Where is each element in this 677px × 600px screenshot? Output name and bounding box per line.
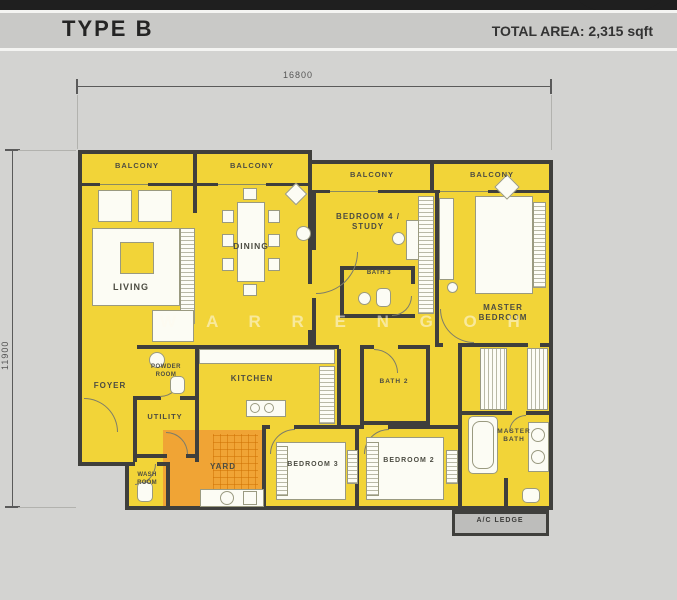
- wall: [458, 343, 528, 347]
- bed-pillows: [533, 202, 546, 288]
- sink: [531, 450, 545, 464]
- dining-chair: [268, 258, 280, 271]
- armchair: [98, 190, 132, 222]
- dining-chair: [222, 210, 234, 223]
- coffee-table: [120, 242, 154, 274]
- wall: [388, 425, 462, 429]
- room-label-bath2: BATH 2: [380, 378, 409, 386]
- wall: [540, 343, 553, 347]
- stove-burner: [264, 403, 274, 413]
- watermark-text: W A R R E N G O H: [160, 312, 540, 332]
- wall: [78, 150, 82, 466]
- toilet: [376, 288, 391, 307]
- wardrobe: [418, 196, 434, 314]
- room-label-bath3: BATH 3: [367, 270, 391, 278]
- dim-label-left: 11900: [0, 300, 10, 370]
- toilet: [522, 488, 540, 503]
- wall: [430, 160, 434, 193]
- floorplan-page: { "header": { "title": "TYPE B", "total_…: [0, 0, 677, 600]
- dim-label-top: 16800: [283, 70, 313, 80]
- dining-chair: [243, 284, 257, 296]
- room-label-master-bath: MASTER BATH: [497, 428, 530, 444]
- wall: [82, 183, 100, 186]
- wall: [137, 396, 161, 400]
- dining-chair: [243, 188, 257, 200]
- total-area-text: TOTAL AREA: 2,315 sqft: [492, 23, 653, 39]
- room-label-balcony-4: BALCONY: [470, 170, 514, 179]
- divider-line: [0, 48, 677, 51]
- stool: [447, 282, 458, 293]
- dim-line-top: [77, 86, 551, 87]
- room-label-bedroom3: BEDROOM 3: [287, 461, 338, 470]
- notch-top-right: [311, 150, 553, 160]
- room-label-wash-room: WASH ROOM: [137, 472, 157, 487]
- wall: [78, 462, 129, 466]
- bed-pillows: [276, 446, 288, 496]
- room-label-living: LIVING: [113, 282, 149, 293]
- wall: [458, 411, 512, 415]
- room-label-foyer: FOYER: [94, 381, 127, 391]
- washer-drum: [220, 491, 234, 505]
- extension-line: [77, 95, 78, 149]
- page-title: TYPE B: [62, 16, 153, 42]
- dim-line-left: [12, 150, 13, 508]
- wall: [337, 349, 341, 429]
- bed-pillows: [366, 442, 379, 496]
- wall: [435, 343, 443, 347]
- wall: [148, 183, 218, 186]
- wall: [411, 266, 415, 284]
- room-label-powder-room: POWDER ROOM: [151, 364, 181, 379]
- wall: [266, 183, 308, 186]
- master-bed: [475, 196, 533, 294]
- dining-chair: [268, 210, 280, 223]
- wall: [526, 411, 553, 415]
- top-dark-bar: [0, 0, 677, 10]
- wall: [360, 349, 364, 425]
- bathtub-inner: [472, 421, 494, 469]
- sink: [531, 428, 545, 442]
- wall: [426, 349, 430, 425]
- wall: [186, 454, 195, 458]
- armchair: [138, 190, 172, 222]
- wall: [549, 160, 553, 510]
- wall: [458, 345, 462, 413]
- wall: [125, 506, 553, 510]
- room-label-utility: UTILITY: [147, 412, 182, 421]
- dim-tick: [76, 79, 78, 94]
- wardrobe: [347, 450, 358, 484]
- wall: [133, 396, 137, 462]
- kitchen-counter: [199, 349, 335, 364]
- dining-chair: [222, 258, 234, 271]
- dressing-table: [439, 198, 454, 280]
- room-label-dining: DINING: [233, 241, 269, 252]
- room-label-balcony-3: BALCONY: [350, 170, 394, 179]
- wall: [125, 462, 129, 510]
- dining-chair: [268, 234, 280, 247]
- wardrobe: [446, 450, 458, 484]
- walkin-wardrobe: [527, 348, 548, 410]
- room-label-kitchen: KITCHEN: [231, 374, 274, 384]
- notch-bottom-left: [78, 466, 125, 510]
- floor-lamp: [296, 226, 311, 241]
- desk-chair: [392, 232, 405, 245]
- room-label-ac-ledge: A/C LEDGE: [476, 517, 523, 526]
- wall: [125, 462, 135, 466]
- laundry-sink: [243, 491, 257, 505]
- sink: [358, 292, 371, 305]
- dim-tick: [550, 79, 552, 94]
- stove-burner: [250, 403, 260, 413]
- fridge: [319, 366, 335, 424]
- extension-line: [18, 150, 76, 151]
- wall: [193, 183, 197, 213]
- wall: [458, 411, 462, 510]
- walkin-wardrobe: [480, 348, 507, 410]
- wall: [312, 192, 316, 250]
- wall: [294, 425, 359, 429]
- room-label-balcony-1: BALCONY: [115, 161, 159, 170]
- wall: [193, 150, 197, 186]
- wall: [137, 454, 167, 458]
- room-label-balcony-2: BALCONY: [230, 161, 274, 170]
- room-label-bedroom2: BEDROOM 2: [383, 457, 434, 466]
- wall: [166, 462, 170, 510]
- room-label-yard: YARD: [210, 462, 236, 472]
- wall: [504, 478, 508, 510]
- extension-line: [18, 507, 76, 508]
- room-label-bedroom4-study: BEDROOM 4 / STUDY: [336, 212, 400, 232]
- wall: [180, 396, 195, 400]
